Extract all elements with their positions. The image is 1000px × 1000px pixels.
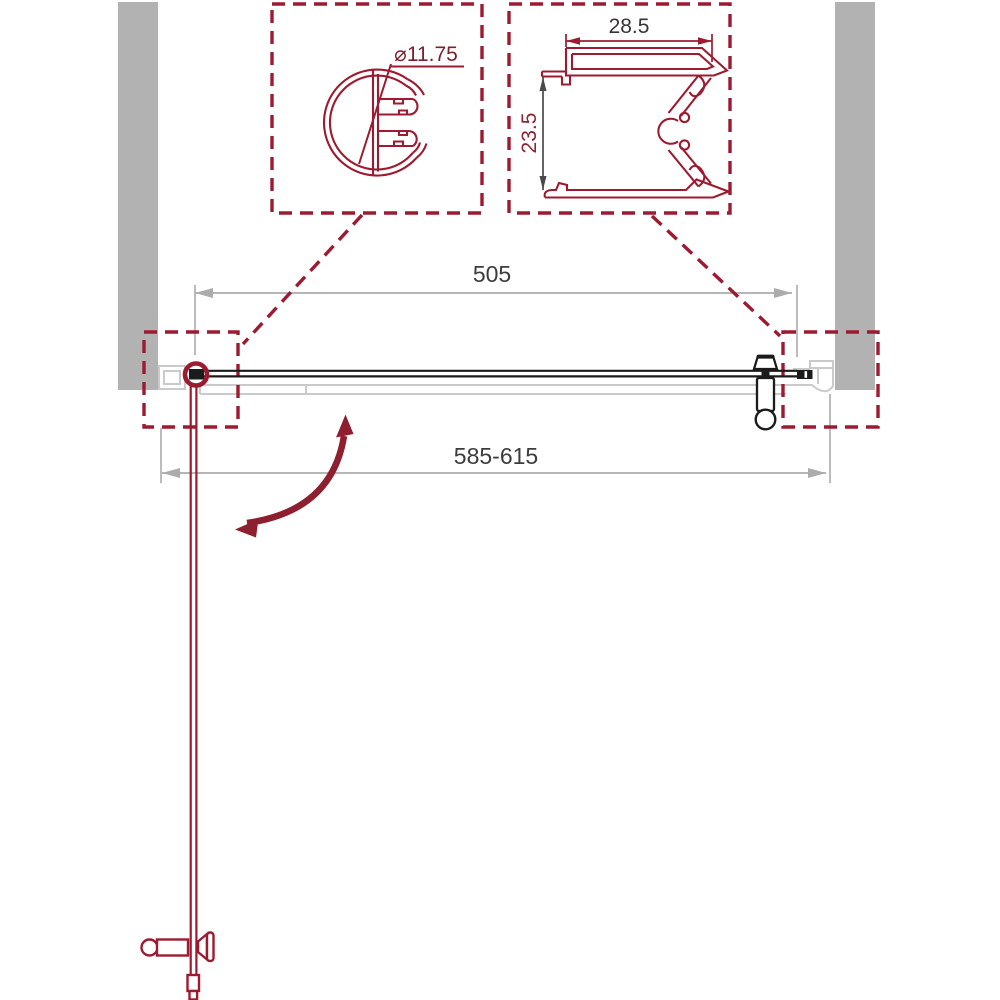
swing-arrowhead-up [336,415,354,438]
door-end-profile-slot [805,371,808,378]
profile-outer-ring [324,70,416,176]
hinge-profile-cross-section [324,64,464,176]
label-wall-profile-width: 28.5 [609,15,650,38]
dim-arrow-left [195,288,213,298]
profile-chord [373,71,378,176]
open-handle-barrel [157,940,188,956]
swing-arc [247,436,344,523]
swing-arrowhead-left [235,519,259,538]
flange-bottom [545,180,729,198]
door-closed-plan [203,370,813,379]
label-hinge-profile-diameter: ⌀11.75 [394,43,458,66]
zigzag-knuckle [658,119,678,144]
profile-top-hook [406,79,424,95]
left-wall-bracket-inner [164,371,180,384]
dimension-adjustment-range [161,394,830,483]
dim-arrow-left [162,468,180,478]
flange-top-inner [572,54,713,69]
technical-drawing-page: ⌀11.75 28.5 23.5 505 585-615 [0,0,1000,1000]
dim-arrow-right [808,468,826,478]
open-door-end-cap [188,975,200,991]
dim-arrow-left [566,37,580,45]
leader-line-right [652,216,780,336]
open-handle-flare [198,934,207,960]
zigzag-bump-upper [680,113,689,122]
leader-line-left [243,215,362,344]
labels: ⌀11.75 28.5 23.5 505 585-615 [394,15,649,469]
door-swing-arrow [235,415,354,538]
dim-arrow-down [540,176,547,190]
label-glass-width: 505 [473,261,511,287]
door-open-plan [142,364,214,1000]
open-handle-cap [207,933,214,962]
hinge-clamp [189,369,204,380]
profile-top-channel [378,99,417,115]
open-door-end-tip [190,991,198,1000]
dim-arrow-right [698,37,712,45]
profile-bottom-channel [378,131,417,146]
shower-door-plan-drawing: ⌀11.75 28.5 23.5 505 585-615 [0,0,1000,1000]
open-handle-knob-end [142,940,158,956]
flange-top-outer [566,48,727,76]
door-seal-ghost [200,385,786,394]
handle-knob-end [756,410,776,430]
dim-arrow-up [540,77,547,91]
wall-profile-cross-section [542,34,729,198]
handle-barrel [757,378,774,411]
label-wall-profile-depth: 23.5 [518,113,541,154]
door-handle-closed [754,355,777,430]
door-handle-open [142,933,214,1000]
label-adjustment-range: 585-615 [454,443,538,469]
dim-arrow-right [774,288,792,298]
knob-base [754,358,777,370]
left-wall-bracket-ghost [159,366,185,389]
